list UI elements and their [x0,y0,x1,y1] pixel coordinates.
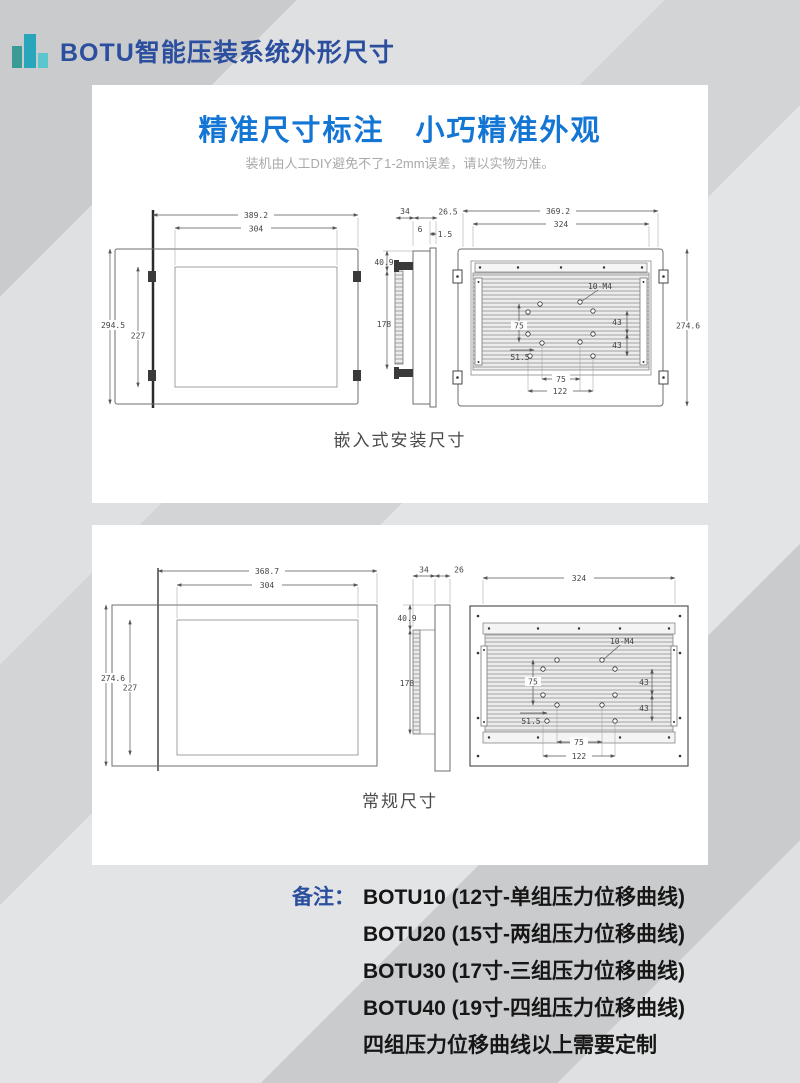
note-line: BOTU30 (17寸-三组压力位移曲线) [363,953,685,990]
notes-section: 备注： BOTU10 (12寸-单组压力位移曲线) BOTU20 (15寸-两组… [292,879,800,1064]
side-view: 34 26.5 6 1.5 40.9 178 [370,207,458,407]
dim-label: 304 [260,581,275,590]
back-view: 369.2 324 274.6 75 43 43 51.5 75 [453,207,700,407]
notes-label: 备注： [292,879,355,1064]
dim-label: 10-M4 [588,282,612,291]
dim-label: 43 [612,318,622,327]
dim-label: 51.5 [510,353,529,362]
front-view: 368.7 304 274.6 227 [100,567,377,772]
dim-label: 34 [400,207,410,216]
dim-label: 369.2 [546,207,570,216]
side-view: 34 26 40.9 178 [392,566,464,772]
page-header: BOTU智能压装系统外形尺寸 [0,0,800,85]
card-caption: 常规尺寸 [92,787,708,812]
dim-label: 227 [123,684,138,693]
note-line: 四组压力位移曲线以上需要定制 [363,1027,685,1064]
dim-label: 40.9 [374,258,393,267]
dim-label: 389.2 [244,211,268,220]
front-view: 389.2 304 294.5 227 [100,210,361,408]
dim-label: 26 [454,566,464,575]
dim-label: 178 [400,679,415,688]
dim-label: 122 [553,387,568,396]
card-embedded-dimensions: 精准尺寸标注 小巧精准外观 装机由人工DIY避免不了1-2mm误差，请以实物为准… [92,85,708,503]
embedded-dimension-drawing: 389.2 304 294.5 227 [100,194,700,416]
note-line: BOTU40 (19寸-四组压力位移曲线) [363,990,685,1027]
card-title: 精准尺寸标注 小巧精准外观 [92,107,708,149]
dim-label: 43 [639,704,649,713]
dim-label: 75 [528,678,538,687]
bar-chart-logo-icon [10,32,48,70]
card-caption: 嵌入式安装尺寸 [92,426,708,451]
dim-label: 324 [554,220,569,229]
note-line: BOTU20 (15寸-两组压力位移曲线) [363,916,685,953]
dim-label: 43 [639,678,649,687]
dim-label: 40.9 [397,614,416,623]
dim-label: 324 [572,574,587,583]
dim-label: 75 [514,322,524,331]
back-view: 324 75 43 43 51.5 [470,574,688,767]
dim-label: 6 [418,225,423,234]
dim-label: 304 [249,225,264,234]
dim-label: 26.5 [438,208,457,217]
card-subtitle: 装机由人工DIY避免不了1-2mm误差，请以实物为准。 [92,153,708,172]
dim-label: 227 [131,332,146,341]
dim-label: 51.5 [521,717,540,726]
dim-label: 178 [377,320,392,329]
dim-label: 274.6 [676,322,700,331]
dim-label: 1.5 [438,230,453,239]
dim-label: 122 [572,752,587,761]
dim-label: 10-M4 [610,637,634,646]
dim-label: 43 [612,341,622,350]
page-title: BOTU智能压装系统外形尺寸 [60,33,395,69]
dim-label: 75 [574,738,584,747]
dim-label: 34 [419,566,429,575]
dim-label: 368.7 [255,567,279,576]
dim-label: 294.5 [101,321,125,330]
card-regular-dimensions: 368.7 304 274.6 227 34 26 40. [92,525,708,865]
regular-dimension-drawing: 368.7 304 274.6 227 34 26 40. [100,553,700,777]
notes-lines: BOTU10 (12寸-单组压力位移曲线) BOTU20 (15寸-两组压力位移… [363,879,685,1064]
dim-label: 274.6 [101,674,125,683]
dim-label: 75 [556,375,566,384]
note-line: BOTU10 (12寸-单组压力位移曲线) [363,879,685,916]
